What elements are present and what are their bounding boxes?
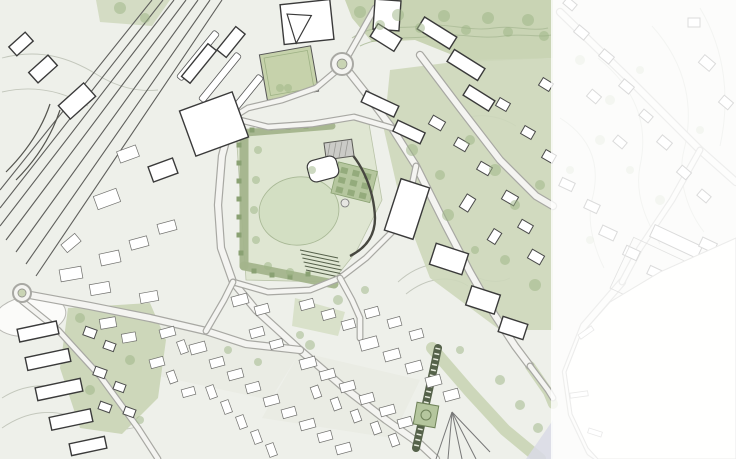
- tree-canopy: [415, 23, 425, 33]
- tree-canopy: [392, 9, 404, 21]
- roundabout-island: [337, 59, 347, 69]
- tree-canopy: [533, 423, 543, 433]
- tree-canopy: [406, 144, 418, 156]
- tree-canopy: [140, 13, 150, 23]
- tree-canopy: [465, 135, 475, 145]
- fade-overlay: [551, 0, 736, 459]
- roundabout-island: [18, 289, 26, 297]
- tree-canopy: [136, 416, 144, 424]
- masterplan-canvas: [0, 0, 736, 459]
- courtyard-square: [413, 402, 438, 427]
- planter-square: [237, 197, 242, 202]
- planter-square: [239, 251, 244, 256]
- tree-canopy: [354, 6, 366, 18]
- tree-canopy: [515, 400, 525, 410]
- planter-square: [252, 269, 257, 274]
- tree-canopy: [500, 255, 510, 265]
- tree-canopy: [254, 146, 262, 154]
- tree-canopy: [489, 164, 501, 176]
- tree-canopy: [510, 200, 520, 210]
- tree-canopy: [85, 385, 95, 395]
- tree-canopy: [250, 206, 258, 214]
- tree-canopy: [284, 84, 292, 92]
- tree-canopy: [75, 313, 85, 323]
- tree-canopy: [308, 166, 316, 174]
- tree-canopy: [471, 246, 479, 254]
- tree-canopy: [361, 286, 369, 294]
- planter-square: [237, 233, 242, 238]
- tree-canopy: [264, 262, 272, 270]
- planter-square: [237, 179, 242, 184]
- tree-canopy: [456, 346, 464, 354]
- tree-canopy: [495, 375, 505, 385]
- tree-canopy: [461, 25, 471, 35]
- tree-canopy: [254, 358, 262, 366]
- planter-square: [237, 161, 242, 166]
- site-plan-drawing: [0, 0, 736, 459]
- planter-square: [237, 215, 242, 220]
- planter-square: [250, 128, 255, 133]
- planter-square: [270, 273, 275, 278]
- tree-canopy: [114, 2, 126, 14]
- tree-canopy: [482, 12, 494, 24]
- tree-canopy: [535, 180, 545, 190]
- tree-canopy: [333, 295, 343, 305]
- tree-canopy: [125, 355, 135, 365]
- tree-canopy: [539, 31, 549, 41]
- tree-canopy: [305, 340, 315, 350]
- tree-canopy: [252, 236, 260, 244]
- tree-canopy: [435, 170, 445, 180]
- planter-square: [306, 272, 311, 277]
- tree-canopy: [503, 27, 513, 37]
- tree-canopy: [286, 268, 294, 276]
- tree-canopy: [296, 331, 304, 339]
- tree-canopy: [522, 14, 534, 26]
- old-town-building: [121, 332, 136, 343]
- tree-canopy: [438, 10, 450, 22]
- fountain-circle: [341, 199, 349, 207]
- planter-square: [237, 143, 242, 148]
- tree-canopy: [276, 84, 284, 92]
- tree-canopy: [224, 346, 232, 354]
- tree-canopy: [252, 176, 260, 184]
- tree-canopy: [529, 279, 541, 291]
- tree-canopy: [375, 20, 385, 30]
- tree-canopy: [442, 209, 454, 221]
